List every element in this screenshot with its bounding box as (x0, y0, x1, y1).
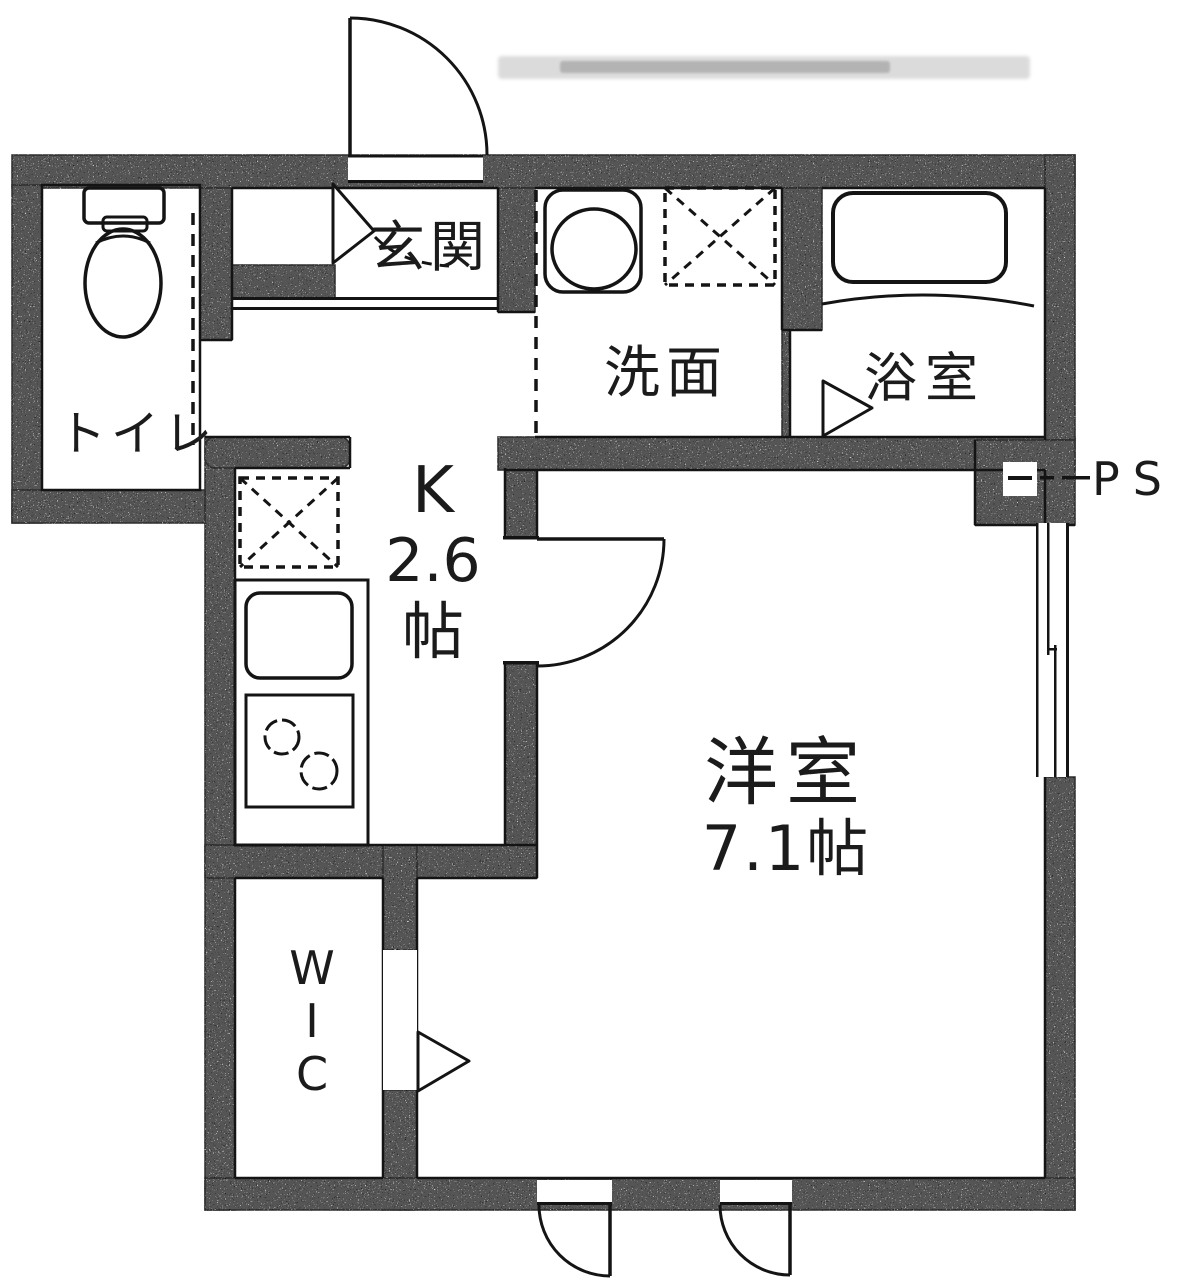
entrance-opening-top-line (348, 155, 483, 158)
balcony-door-opening-2 (720, 1180, 792, 1204)
balcony-opening-1-bottom-line (537, 1202, 612, 1205)
wall-right-lower (1045, 777, 1075, 1210)
wic-door-opening (383, 950, 417, 1090)
kitchen-door-opening-top-line (503, 536, 539, 540)
balcony-door-opening-1 (537, 1180, 612, 1204)
wall-right-upper (1045, 155, 1075, 440)
wall-hall-kitchen-stub (205, 437, 350, 468)
balcony-door-1-swing-arc (539, 1205, 610, 1276)
balcony-opening-2-bottom-line (720, 1202, 792, 1205)
western-room-label: 洋室 7.1帖 (646, 732, 926, 884)
kitchen-door-opening (503, 539, 539, 662)
entrance-door-swing-arc (350, 18, 487, 155)
wall-wic-right-upper (383, 845, 417, 950)
bathtub-icon (833, 193, 1006, 282)
western-room-name: 洋室 (646, 732, 926, 814)
kitchen-door-opening-bottom-line (503, 661, 539, 665)
wic-letter-w: W (282, 942, 342, 995)
window-pane-1 (1047, 523, 1050, 655)
wall-kitchen-divider-lower (505, 663, 537, 855)
vanity-basin-icon (552, 209, 636, 289)
window-outer-frame (1066, 523, 1069, 777)
kitchen-size-value: 2.6 (363, 526, 503, 596)
kitchen-type-label: K (363, 456, 503, 526)
wic-letter-c: C (282, 1048, 342, 1101)
balcony-opening-1-top-line (537, 1177, 612, 1180)
wall-left-upper (12, 185, 42, 523)
entrance-step-line-2 (232, 307, 498, 310)
washroom-label: 洗面 (604, 328, 728, 409)
window-pane-2 (1054, 645, 1057, 777)
wall-entrance-washroom (498, 188, 535, 312)
kitchen-door-swing-arc (537, 539, 664, 666)
wall-kitchen-bottom (205, 845, 537, 878)
walls (12, 155, 1075, 1210)
floor-plan-drawing (0, 0, 1193, 1280)
wic-door-arrow (418, 1032, 469, 1091)
wall-face-lines (42, 185, 1075, 1178)
entrance-step-line-1 (232, 297, 498, 300)
toilet-label: トイレ (58, 394, 217, 464)
wall-left-lower (205, 437, 235, 1210)
floor-plan: 玄関 洗面 浴室 トイレ K 2.6 帖 洋室 7.1帖 W I C PS (0, 0, 1193, 1280)
wall-toilet-bottom (12, 490, 235, 523)
washing-machine-space-icon (665, 188, 775, 285)
balcony-door-2-swing-arc (720, 1205, 790, 1275)
kitchen-label: K 2.6 帖 (363, 456, 503, 668)
entrance-opening-bottom-line (348, 180, 483, 183)
wall-toilet-entrance-divider (200, 188, 232, 340)
ps-leader-dash-2 (1062, 476, 1090, 480)
window-inner-frame (1036, 523, 1039, 777)
toilet-bowl-icon (85, 229, 161, 337)
ps-leader-dash-1 (1040, 476, 1054, 480)
entrance-door-opening (348, 157, 483, 180)
wall-kitchen-divider-upper (505, 470, 537, 538)
openings (348, 155, 1090, 1205)
pipe-space-label: PS (1092, 452, 1175, 506)
window-latch (1047, 648, 1057, 651)
entrance-label: 玄関 (370, 202, 490, 282)
western-room-size: 7.1帖 (646, 814, 926, 884)
wall-washroom-bath-divider (782, 188, 822, 330)
balcony-opening-2-top-line (720, 1177, 792, 1180)
wall-top (12, 155, 1075, 188)
wall-shoe-cabinet (232, 265, 335, 298)
kitchen-size-unit: 帖 (363, 596, 503, 668)
bathroom-label: 浴室 (864, 336, 986, 412)
kitchen-counter-icon (235, 580, 368, 845)
refrigerator-space-icon (240, 478, 338, 567)
wall-bottom (205, 1178, 1075, 1210)
wic-label: W I C (282, 942, 342, 1101)
pipe-space-mark (1008, 476, 1032, 480)
bathtub-apron-line (822, 295, 1034, 306)
entrance-door-arrow (333, 184, 374, 263)
wic-letter-i: I (282, 995, 342, 1048)
